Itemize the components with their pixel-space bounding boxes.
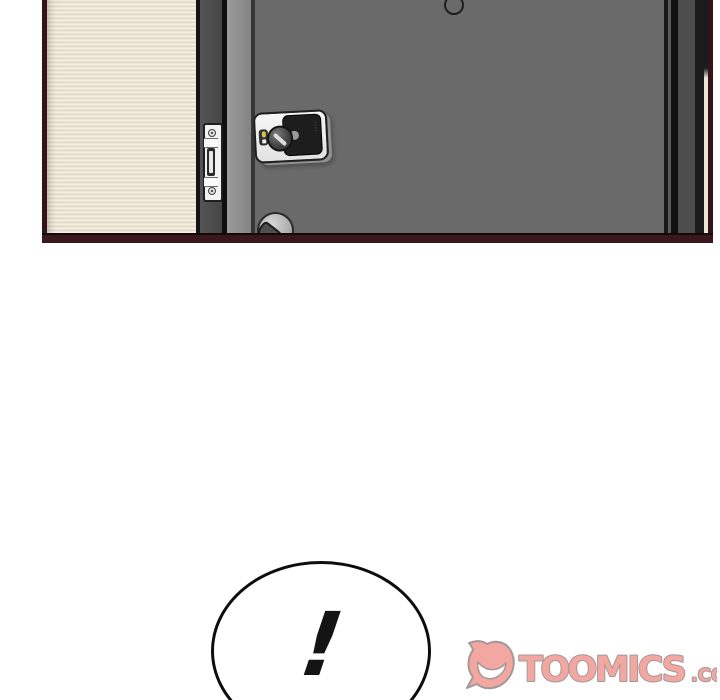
frame-shadow [695,0,704,243]
plate-block [204,177,218,187]
door-right-line [671,0,678,243]
lock-brand-label: ···· [312,122,318,133]
door-scene-panel: ···· [42,0,713,243]
panel-border-right [708,0,713,243]
devil-icon [467,641,514,688]
led-white [262,139,266,143]
panel-border-left [42,0,47,243]
panel-border-bottom [42,233,713,243]
speech-bubble: ! [211,561,431,700]
deadbolt [209,151,213,173]
door-frame-right [678,0,695,243]
latch-slot [207,148,215,176]
brand-tld: .COM [691,665,717,686]
screw-icon [208,187,216,195]
strike-plate [203,123,223,202]
screw-icon [208,129,216,137]
hallway-wall [47,0,196,243]
exclamation-text: ! [296,601,349,689]
led-yellow [261,131,265,137]
smart-lock: ···· [253,109,330,164]
plate-block [204,138,218,148]
brand-word: TOOMICS [519,650,685,690]
door-edge [227,0,251,243]
brand-text: TOOMICS .COM [519,650,717,690]
toomics-logo: TOOMICS .COM [465,640,717,694]
comic-page: ···· ! TOOMICS .COM [0,0,720,700]
door-jamb [200,0,222,243]
